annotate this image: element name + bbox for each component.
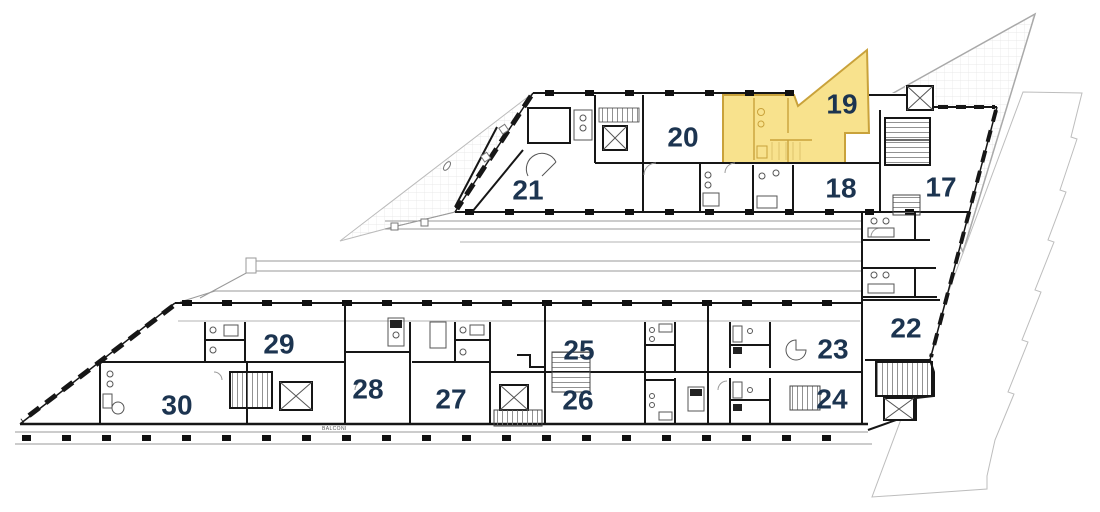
floor-plan-svg: BALCONI 17 18 19 20 21 22 23 24 25 26 27…	[0, 0, 1100, 512]
unit-label-28[interactable]: 28	[352, 374, 383, 405]
balcony-bands	[180, 212, 862, 302]
unit-label-17[interactable]: 17	[925, 172, 956, 203]
building-silhouette	[20, 86, 997, 430]
unit-label-30[interactable]: 30	[161, 390, 192, 421]
unit-label-29[interactable]: 29	[263, 329, 294, 360]
unit-label-24[interactable]: 24	[816, 384, 848, 415]
unit-label-25[interactable]: 25	[563, 335, 594, 366]
unit-label-19[interactable]: 19	[826, 89, 857, 120]
unit-label-22[interactable]: 22	[890, 313, 921, 344]
balcony-label: BALCONI	[322, 426, 347, 432]
unit-label-21[interactable]: 21	[512, 175, 543, 206]
unit-label-20[interactable]: 20	[667, 122, 698, 153]
unit-label-18[interactable]: 18	[825, 173, 856, 204]
unit-label-26[interactable]: 26	[562, 385, 593, 416]
unit-label-27[interactable]: 27	[435, 384, 466, 415]
floor-plan-stage: BALCONI 17 18 19 20 21 22 23 24 25 26 27…	[0, 0, 1100, 512]
unit-label-23[interactable]: 23	[817, 334, 848, 365]
bottom-balcony: BALCONI	[15, 426, 872, 444]
